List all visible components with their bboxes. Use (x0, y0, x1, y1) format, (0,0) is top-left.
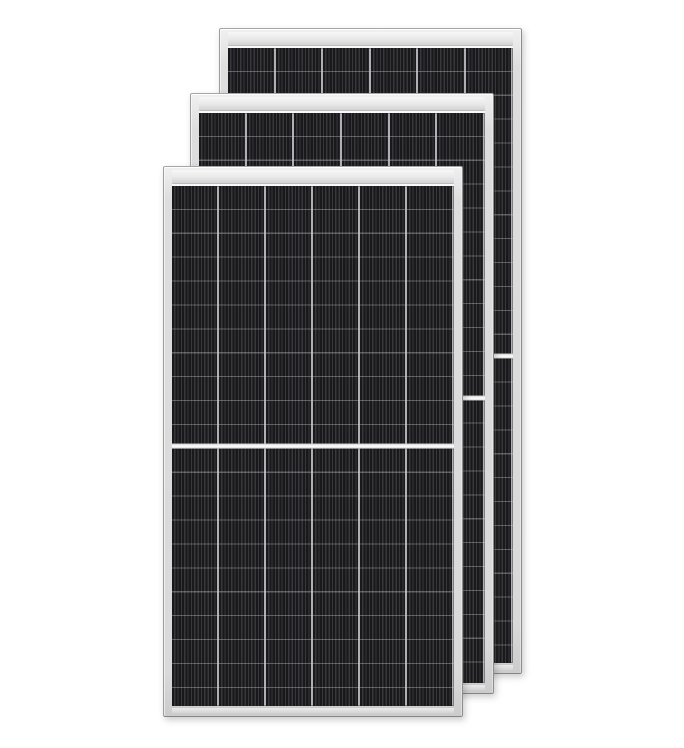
half-cut-divider (172, 444, 454, 449)
panel-top-frame-rail (199, 97, 485, 111)
panel-top-frame-rail (228, 32, 513, 46)
solar-panel-stack (0, 0, 684, 748)
panel-bottom-frame-rail (172, 707, 454, 713)
panel-top-frame-rail (172, 170, 454, 184)
solar-panel-front (163, 166, 463, 717)
panel-cell-area (172, 184, 454, 707)
